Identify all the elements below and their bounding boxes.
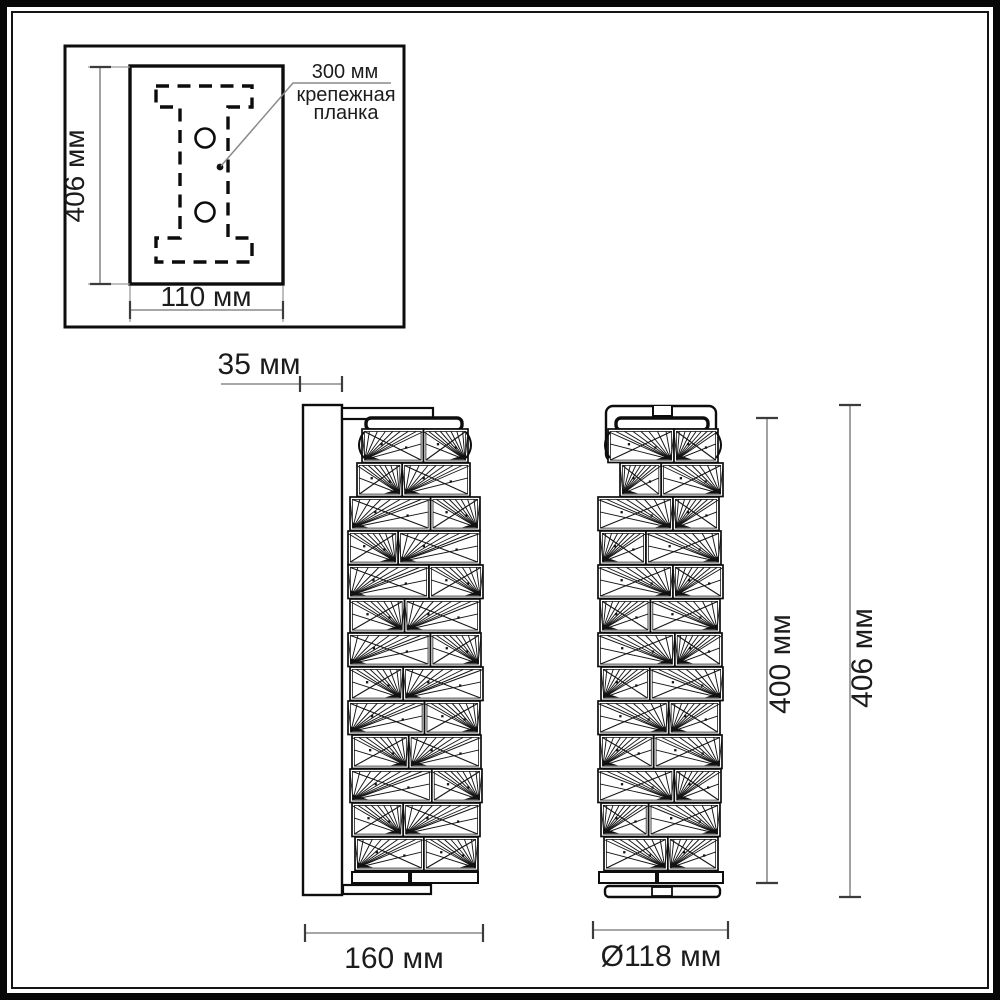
crystal-row	[601, 803, 720, 837]
crystal-row	[600, 531, 721, 565]
facet-dot	[367, 817, 369, 819]
crystal-row	[598, 633, 722, 667]
inset-height-label: 406 мм	[59, 130, 90, 223]
facet-dot	[363, 545, 365, 547]
front-view: 400 мм 406 мм Ø118 мм	[593, 405, 879, 973]
crystal-row	[362, 429, 468, 463]
facet-dot	[388, 616, 390, 618]
facet-dot	[374, 511, 376, 513]
facet-dot	[705, 446, 707, 448]
crystal-row	[352, 803, 480, 837]
facet-dot	[407, 786, 409, 788]
facet-dot	[445, 579, 447, 581]
crystal-row	[350, 769, 482, 803]
facet-dot	[466, 650, 468, 652]
facet-dot	[680, 477, 682, 479]
depth-dimension-label: 35 мм	[218, 348, 301, 381]
mounting-template-inset: 300 мм крепежная планка 406 мм 110 мм	[59, 46, 404, 327]
facet-dot	[445, 511, 447, 513]
facet-dot	[703, 854, 705, 856]
facet-dot	[705, 514, 707, 516]
facet-dot	[423, 477, 425, 479]
crystal-row	[598, 565, 723, 599]
facet-dot	[704, 480, 706, 482]
facet-dot	[688, 579, 690, 581]
facet-dot	[375, 783, 377, 785]
facet-dot	[635, 684, 637, 686]
crystal-row	[604, 837, 718, 871]
facet-dot	[651, 786, 653, 788]
facet-dot	[616, 681, 618, 683]
bottom-plate-front-left	[599, 872, 656, 883]
crystal-row	[357, 463, 470, 497]
bottom-tab	[652, 887, 672, 896]
crystal-row	[348, 633, 481, 667]
facet-dot	[380, 443, 382, 445]
facet-dot	[450, 480, 452, 482]
technical-drawing: 300 мм крепежная планка 406 мм 110 мм 35…	[0, 0, 1000, 1000]
facet-dot	[668, 545, 670, 547]
facet-dot	[672, 681, 674, 683]
facet-dot	[463, 718, 465, 720]
facet-dot	[638, 752, 640, 754]
facet-dot	[628, 443, 630, 445]
dimension-drawing-page: 300 мм крепежная планка 406 мм 110 мм 35…	[0, 0, 1000, 1000]
facet-dot	[649, 480, 651, 482]
facet-dot	[683, 851, 685, 853]
facet-dot	[616, 749, 618, 751]
facet-dot	[707, 786, 709, 788]
facet-dot	[623, 851, 625, 853]
facet-dot	[632, 477, 634, 479]
facet-dot	[371, 477, 373, 479]
facet-dot	[405, 446, 407, 448]
facet-dot	[621, 579, 623, 581]
crystal-row	[350, 667, 483, 701]
facet-dot	[654, 446, 656, 448]
facet-dot	[687, 443, 689, 445]
facet-dot	[457, 616, 459, 618]
facet-dot	[708, 650, 710, 652]
callout-name-line2: планка	[314, 102, 380, 124]
facet-dot	[698, 548, 700, 550]
facet-dot	[403, 854, 405, 856]
crystal-row	[600, 735, 722, 769]
facet-dot	[441, 715, 443, 717]
facet-dot	[440, 851, 442, 853]
facet-dot	[389, 480, 391, 482]
facet-dot	[383, 548, 385, 550]
facet-dot	[465, 514, 467, 516]
facet-dot	[651, 514, 653, 516]
facet-dot	[705, 718, 707, 720]
facet-dot	[652, 650, 654, 652]
facet-dot	[376, 851, 378, 853]
facet-dot	[467, 786, 469, 788]
facet-dot	[615, 613, 617, 615]
facet-dot	[614, 545, 616, 547]
facet-dot	[688, 783, 690, 785]
facet-dot	[437, 443, 439, 445]
crystal-row	[348, 701, 480, 735]
facet-dot	[621, 783, 623, 785]
callout-dimension-label: 300 мм	[312, 61, 378, 83]
facet-dot	[649, 854, 651, 856]
crystal-row	[600, 599, 720, 633]
facet-dot	[702, 752, 704, 754]
facet-dot	[687, 511, 689, 513]
facet-dot	[634, 820, 636, 822]
crystal-row	[355, 837, 478, 871]
crystal-row	[598, 769, 721, 803]
facet-dot	[701, 684, 703, 686]
facet-dot	[446, 647, 448, 649]
bottom-plate-front-right	[658, 872, 723, 883]
facet-dot	[462, 854, 464, 856]
facet-dot	[615, 817, 617, 819]
facet-dot	[392, 752, 394, 754]
facet-dot	[430, 749, 432, 751]
facet-dot	[671, 613, 673, 615]
crystal-row	[352, 735, 481, 769]
facet-dot	[366, 681, 368, 683]
bottom-arm-side	[343, 885, 431, 894]
facet-dot	[372, 579, 374, 581]
crystal-row	[601, 667, 723, 701]
facet-dot	[388, 820, 390, 822]
facet-dot	[648, 718, 650, 720]
crystal-row	[348, 565, 483, 599]
facet-dot	[406, 650, 408, 652]
facet-dot	[427, 613, 429, 615]
facet-dot	[670, 817, 672, 819]
facet-dot	[455, 548, 457, 550]
facet-dot	[684, 715, 686, 717]
facet-dot	[621, 511, 623, 513]
facet-dot	[459, 752, 461, 754]
bottom-plate-side-right	[411, 872, 478, 883]
wall-plate-side	[303, 405, 342, 895]
crystal-row	[350, 497, 480, 531]
facet-dot	[467, 582, 469, 584]
facet-dot	[427, 681, 429, 683]
facet-dot	[619, 715, 621, 717]
facet-dot	[699, 616, 701, 618]
facet-dot	[402, 718, 404, 720]
side-view: 35 мм	[218, 348, 483, 975]
facet-dot	[651, 582, 653, 584]
facet-dot	[457, 820, 459, 822]
crystal-row	[348, 531, 480, 565]
top-tab	[653, 406, 672, 416]
facet-dot	[459, 684, 461, 686]
facet-dot	[708, 582, 710, 584]
diameter-dimension-label: Ø118 мм	[601, 940, 722, 973]
facet-dot	[373, 647, 375, 649]
facet-dot	[621, 647, 623, 649]
crystal-row	[598, 497, 719, 531]
facet-dot	[369, 749, 371, 751]
facet-dot	[447, 783, 449, 785]
inset-width-label: 110 мм	[161, 281, 252, 312]
facet-dot	[405, 582, 407, 584]
crystal-row	[608, 429, 718, 463]
facet-dot	[423, 545, 425, 547]
crystal-row	[620, 463, 723, 497]
facet-dot	[455, 446, 457, 448]
total-height-label: 406 мм	[846, 608, 879, 708]
facet-dot	[387, 684, 389, 686]
facet-dot	[699, 820, 701, 822]
crystal-row	[598, 701, 720, 735]
facet-dot	[689, 647, 691, 649]
inner-height-label: 400 мм	[764, 614, 797, 714]
backplate-outline	[130, 66, 283, 284]
facet-dot	[366, 613, 368, 615]
facet-dot	[632, 548, 634, 550]
bottom-plate-side-left	[352, 872, 409, 883]
facet-dot	[406, 514, 408, 516]
facet-dot	[674, 749, 676, 751]
crystal-row	[350, 599, 480, 633]
facet-dot	[371, 715, 373, 717]
facet-dot	[426, 817, 428, 819]
width-dimension-label: 160 мм	[344, 942, 444, 975]
facet-dot	[635, 616, 637, 618]
